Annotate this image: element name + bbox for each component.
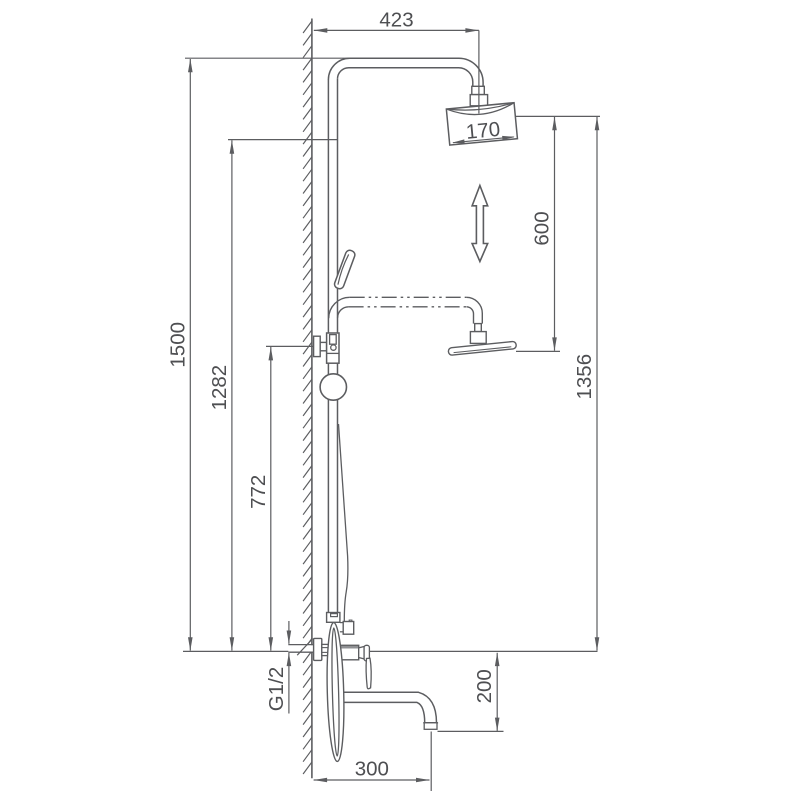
svg-text:200: 200 <box>473 669 496 703</box>
svg-text:300: 300 <box>355 758 389 781</box>
svg-text:1500: 1500 <box>166 322 189 368</box>
svg-text:1356: 1356 <box>573 354 596 400</box>
svg-text:772: 772 <box>247 475 270 509</box>
svg-text:1282: 1282 <box>208 365 231 411</box>
svg-text:G1/2: G1/2 <box>265 667 288 711</box>
svg-text:423: 423 <box>379 9 413 32</box>
svg-text:600: 600 <box>531 211 554 245</box>
